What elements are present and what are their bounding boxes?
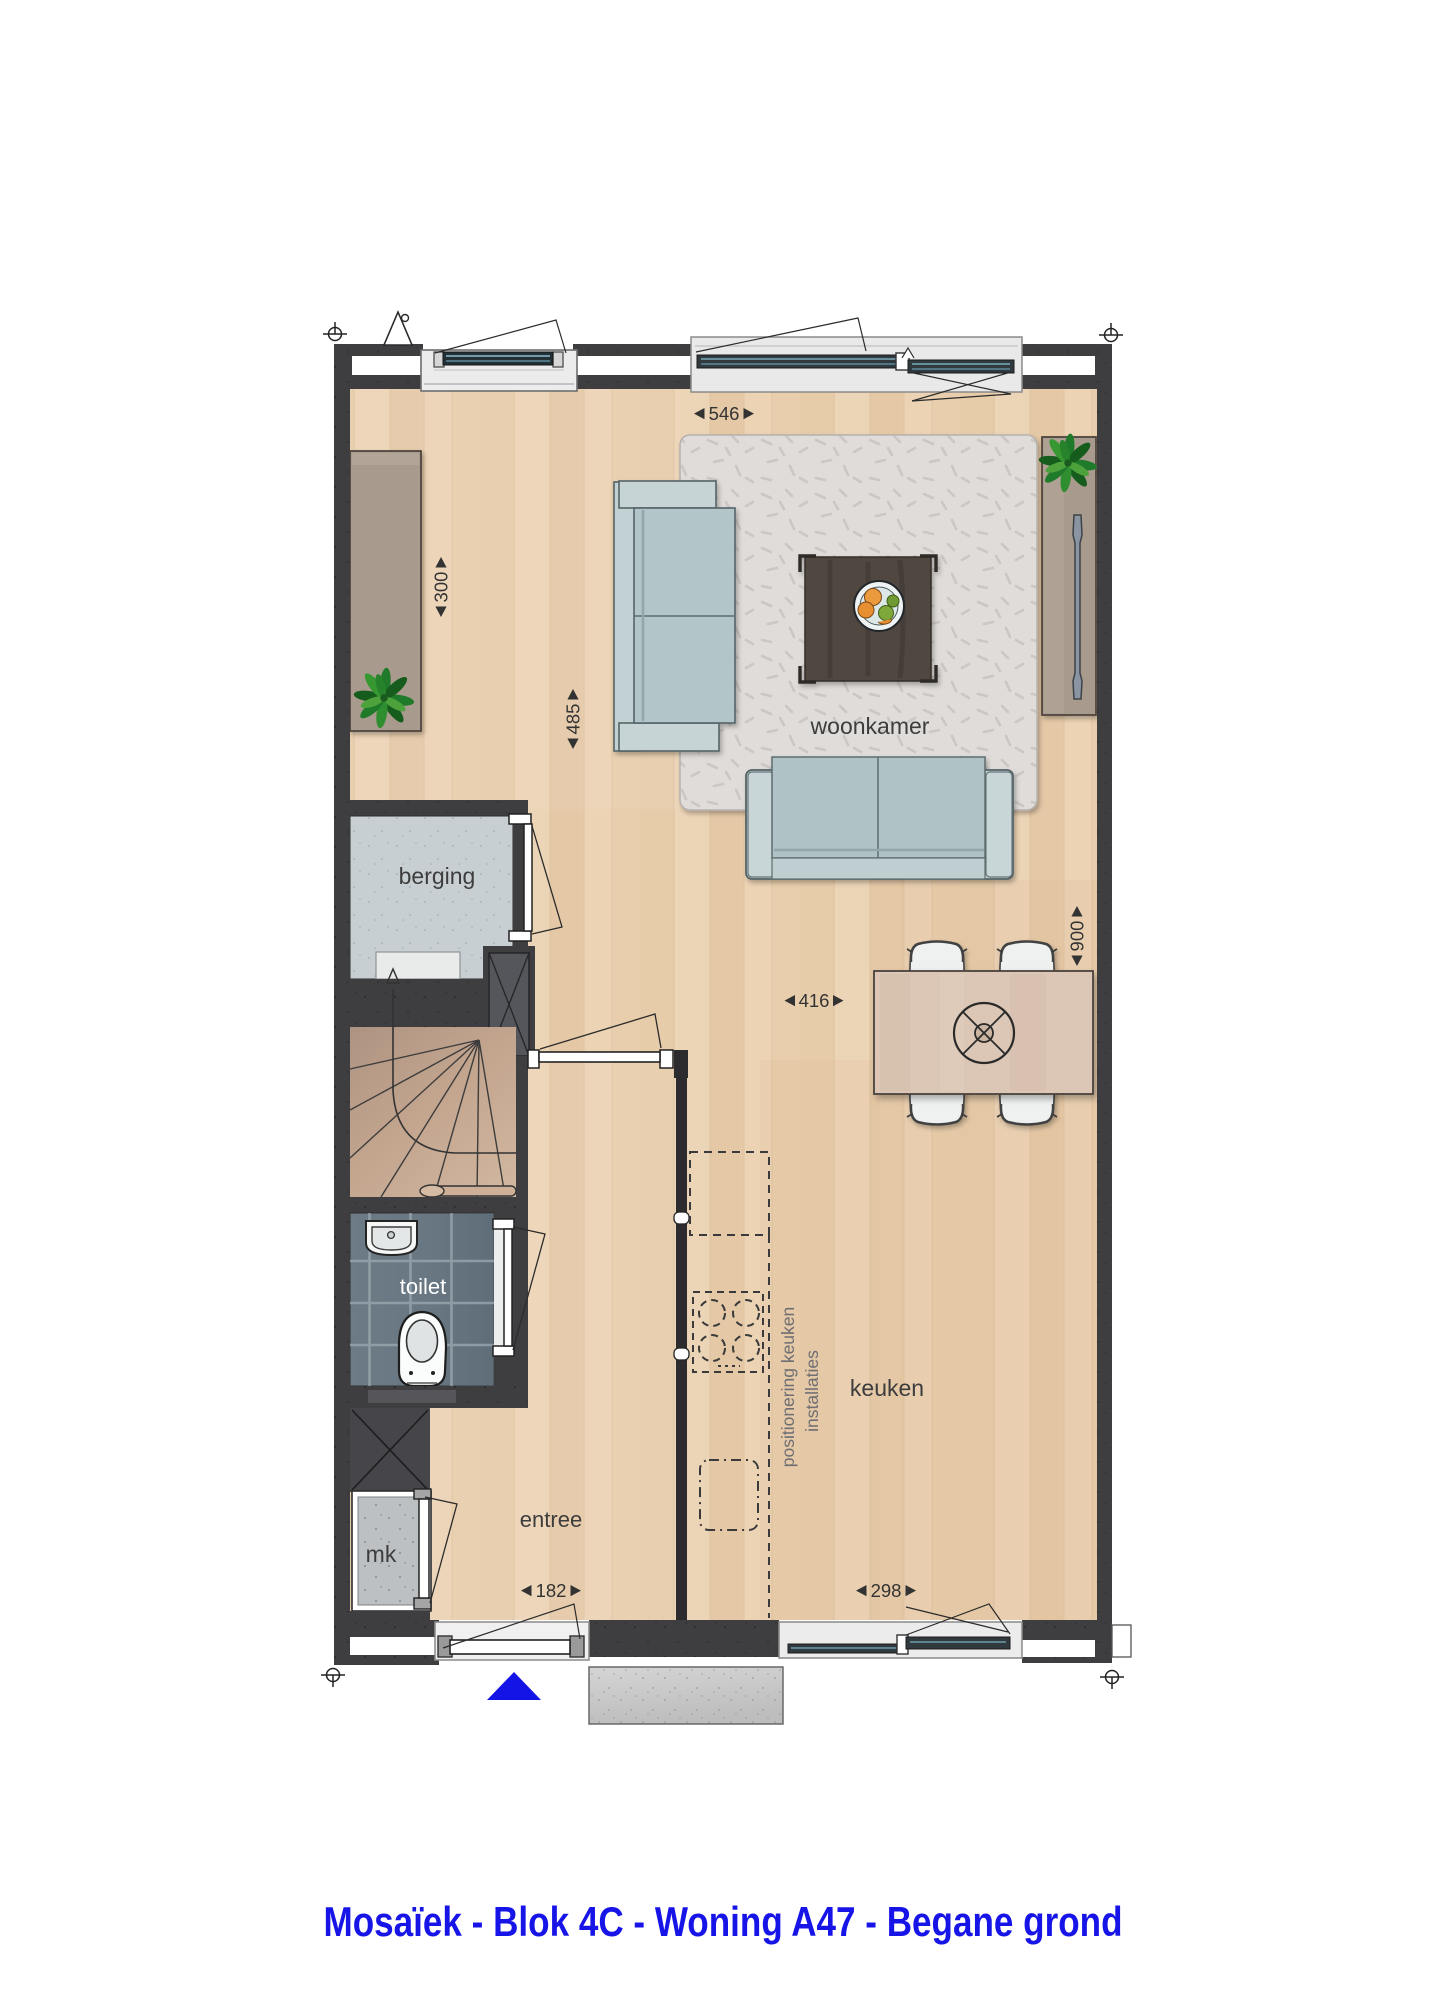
svg-text:woonkamer: woonkamer <box>810 713 930 739</box>
svg-text:546: 546 <box>709 403 740 424</box>
svg-text:berging: berging <box>399 863 476 889</box>
svg-text:toilet: toilet <box>400 1274 446 1299</box>
svg-text:keuken: keuken <box>850 1375 924 1401</box>
svg-text:installaties: installaties <box>802 1350 822 1432</box>
svg-text:182: 182 <box>536 1580 567 1601</box>
svg-text:positionering keuken: positionering keuken <box>778 1307 798 1468</box>
svg-text:entree: entree <box>520 1507 582 1532</box>
svg-text:485: 485 <box>563 704 584 735</box>
svg-text:Mosaïek - Blok 4C - Woning A47: Mosaïek - Blok 4C - Woning A47 - Begane … <box>324 1898 1123 1945</box>
svg-text:298: 298 <box>871 1580 902 1601</box>
svg-text:300: 300 <box>431 572 452 603</box>
svg-text:416: 416 <box>799 990 830 1011</box>
svg-text:900: 900 <box>1067 921 1088 952</box>
svg-text:mk: mk <box>366 1541 397 1567</box>
